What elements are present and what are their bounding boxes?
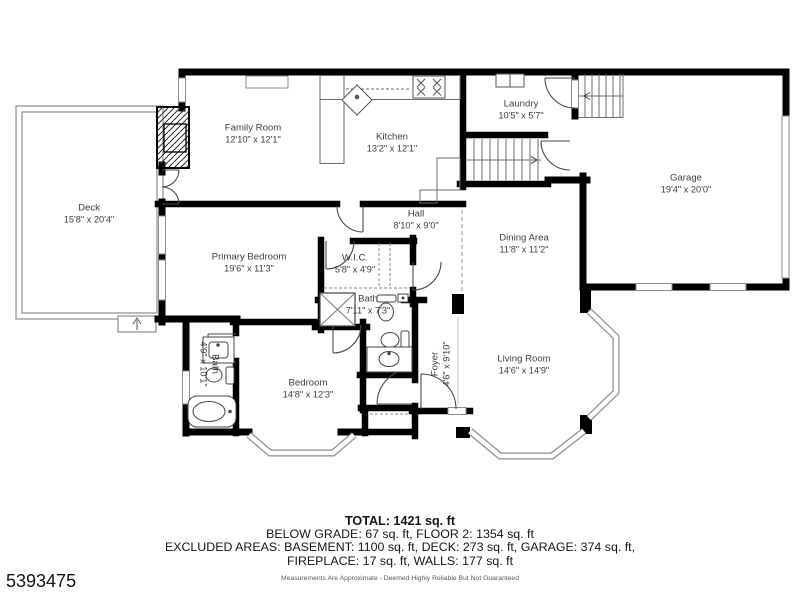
fireplace-icon <box>157 107 189 168</box>
listing-id: 5393475 <box>6 571 76 592</box>
room-label-primary-bedroom: Primary Bedroom 19'6" x 11'3" <box>212 252 287 275</box>
stove-icon <box>413 76 445 98</box>
room-label-wic: W.I.C. 5'8" x 4'9" <box>335 253 375 276</box>
room-label-bath-2: Bath 4'9" x 10'1" <box>198 341 221 386</box>
stairs-basement <box>467 139 541 180</box>
room-label-foyer: Foyer 4'6" x 9'10" <box>430 341 453 386</box>
excluded-areas-line: EXCLUDED AREAS: BASEMENT: 1100 sq. ft, D… <box>0 541 800 554</box>
room-label-bath: Bath 7'11" x 7'3" <box>346 294 391 317</box>
bathroom-sink-icon <box>367 347 412 372</box>
room-label-deck: Deck 15'8" x 20'4" <box>64 203 114 226</box>
bathroom-sink-icon <box>398 294 408 302</box>
floorplan-drawing <box>0 0 800 600</box>
room-label-dining-area: Dining Area 11'8" x 11'2" <box>499 233 549 256</box>
room-label-garage: Garage 19'4" x 20'0" <box>661 173 711 196</box>
bathtub-icon <box>188 396 236 427</box>
toilet-icon <box>381 331 409 349</box>
room-label-kitchen: Kitchen 13'2" x 12'1" <box>367 132 417 155</box>
area-summary: TOTAL: 1421 sq. ft BELOW GRADE: 67 sq. f… <box>0 514 800 582</box>
total-area-line: TOTAL: 1421 sq. ft <box>0 514 800 528</box>
room-label-family-room: Family Room 12'10" x 12'1" <box>225 123 282 146</box>
below-grade-line: BELOW GRADE: 67 sq. ft, FLOOR 2: 1354 sq… <box>0 528 800 541</box>
door-arc-garage-entry <box>541 141 570 170</box>
washer-dryer-icon <box>496 74 524 87</box>
room-label-living-room: Living Room 14'6" x 14'9" <box>497 354 550 377</box>
floorplan-page: Deck 15'8" x 20'4" Family Room 12'10" x … <box>0 0 800 600</box>
room-label-bedroom: Bedroom 14'8" x 12'3" <box>283 378 333 401</box>
disclaimer: Measurements Are Approximate - Deemed Hi… <box>0 575 800 582</box>
door-arc-laundry <box>545 78 579 108</box>
room-label-hall: Hall 8'10" x 9'0" <box>393 209 438 232</box>
door-arc-primary-bedroom <box>337 206 363 232</box>
door-arc-bath-hall <box>413 262 441 290</box>
room-label-laundry: Laundry 10'5" x 5'7" <box>498 99 543 122</box>
excluded-areas-line-2: FIREPLACE: 17 sq. ft, WALLS: 177 sq. ft <box>0 555 800 568</box>
